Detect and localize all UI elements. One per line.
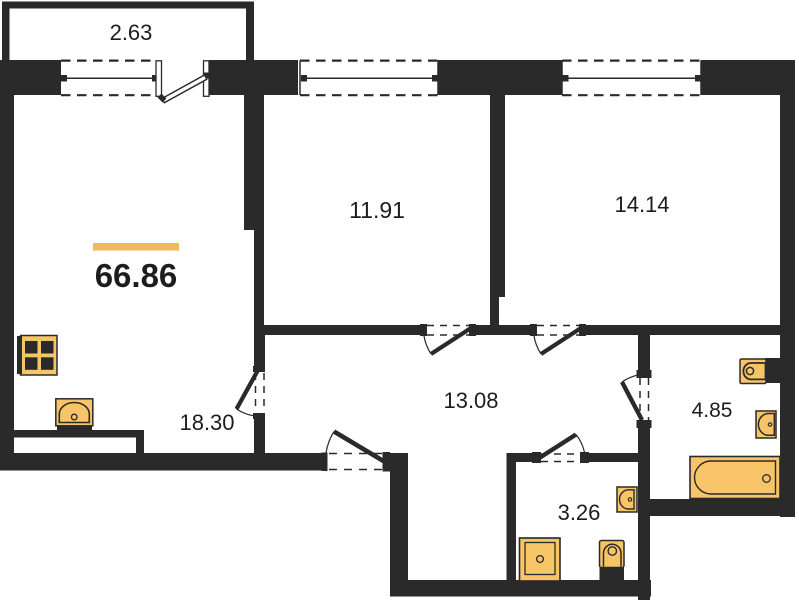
svg-text:2.63: 2.63 xyxy=(110,20,153,45)
svg-text:4.85: 4.85 xyxy=(692,399,733,422)
svg-text:13.08: 13.08 xyxy=(443,388,498,413)
svg-text:11.91: 11.91 xyxy=(349,197,405,223)
svg-text:3.26: 3.26 xyxy=(558,500,601,525)
svg-text:14.14: 14.14 xyxy=(614,192,669,217)
svg-text:18.30: 18.30 xyxy=(179,410,234,435)
svg-text:66.86: 66.86 xyxy=(95,257,178,294)
